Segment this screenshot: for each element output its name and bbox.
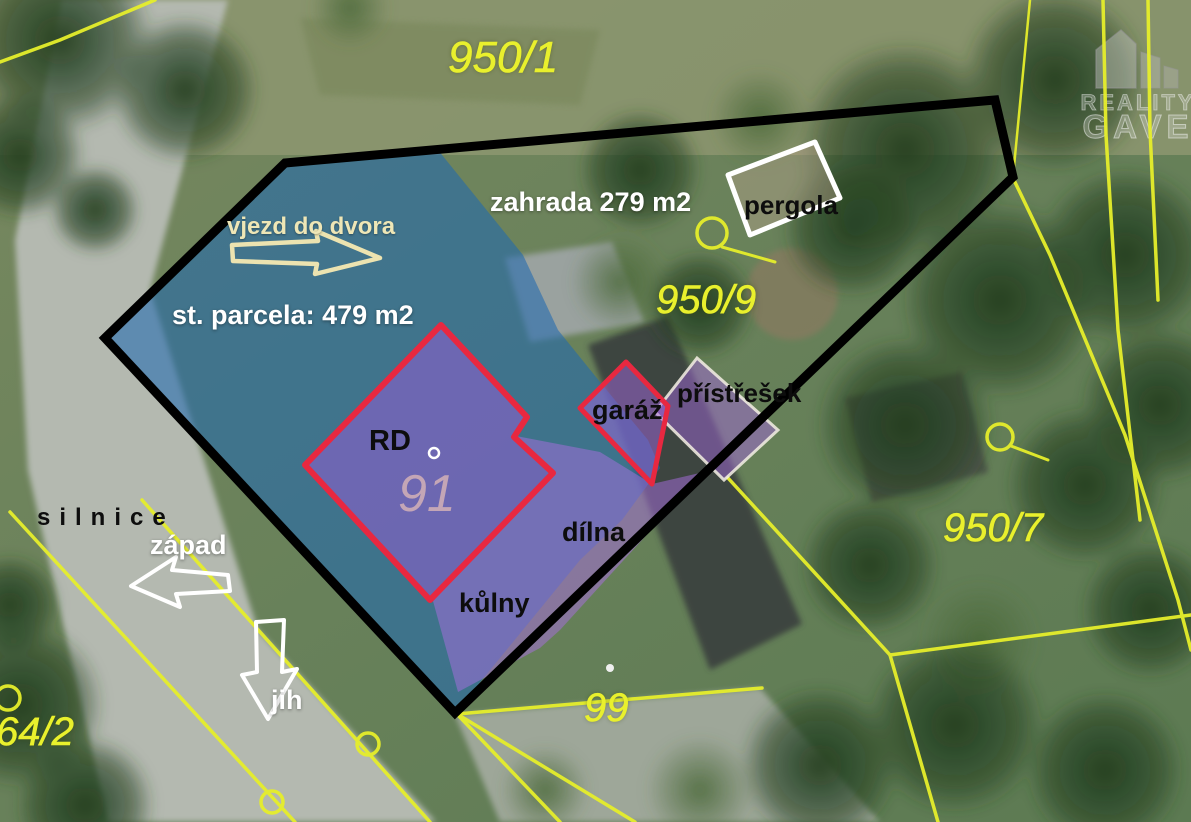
road-label: silnice: [37, 506, 175, 530]
aerial-cadastral-map: REALITY GAVE 950/1 950/9 950/7 99: [0, 0, 1191, 822]
south-label: jih: [271, 687, 303, 714]
parcel-label-64-2: 64/2: [0, 712, 74, 752]
watermark-text-line2: GAVE: [1082, 108, 1191, 145]
parcel-label-950-7: 950/7: [943, 508, 1043, 548]
west-label: západ: [150, 532, 227, 559]
entrance-label: vjezd do dvora: [227, 215, 395, 239]
shelter-label: přístřešek: [677, 380, 801, 406]
survey-dot-icon: [606, 664, 614, 672]
garage-label: garáž: [592, 397, 663, 424]
house-label: RD: [369, 427, 411, 456]
building-parcel-area-label: st. parcela: 479 m2: [172, 302, 414, 329]
sheds-label: kůlny: [459, 590, 530, 617]
pergola-label: pergola: [744, 192, 838, 218]
workshop-label: dílna: [562, 519, 625, 546]
garden-area-label: zahrada 279 m2: [490, 189, 691, 216]
parcel-label-91: 91: [398, 468, 456, 520]
parcel-label-950-1: 950/1: [448, 36, 558, 80]
parcel-label-99: 99: [584, 688, 629, 728]
parcel-label-950-9: 950/9: [656, 280, 756, 320]
